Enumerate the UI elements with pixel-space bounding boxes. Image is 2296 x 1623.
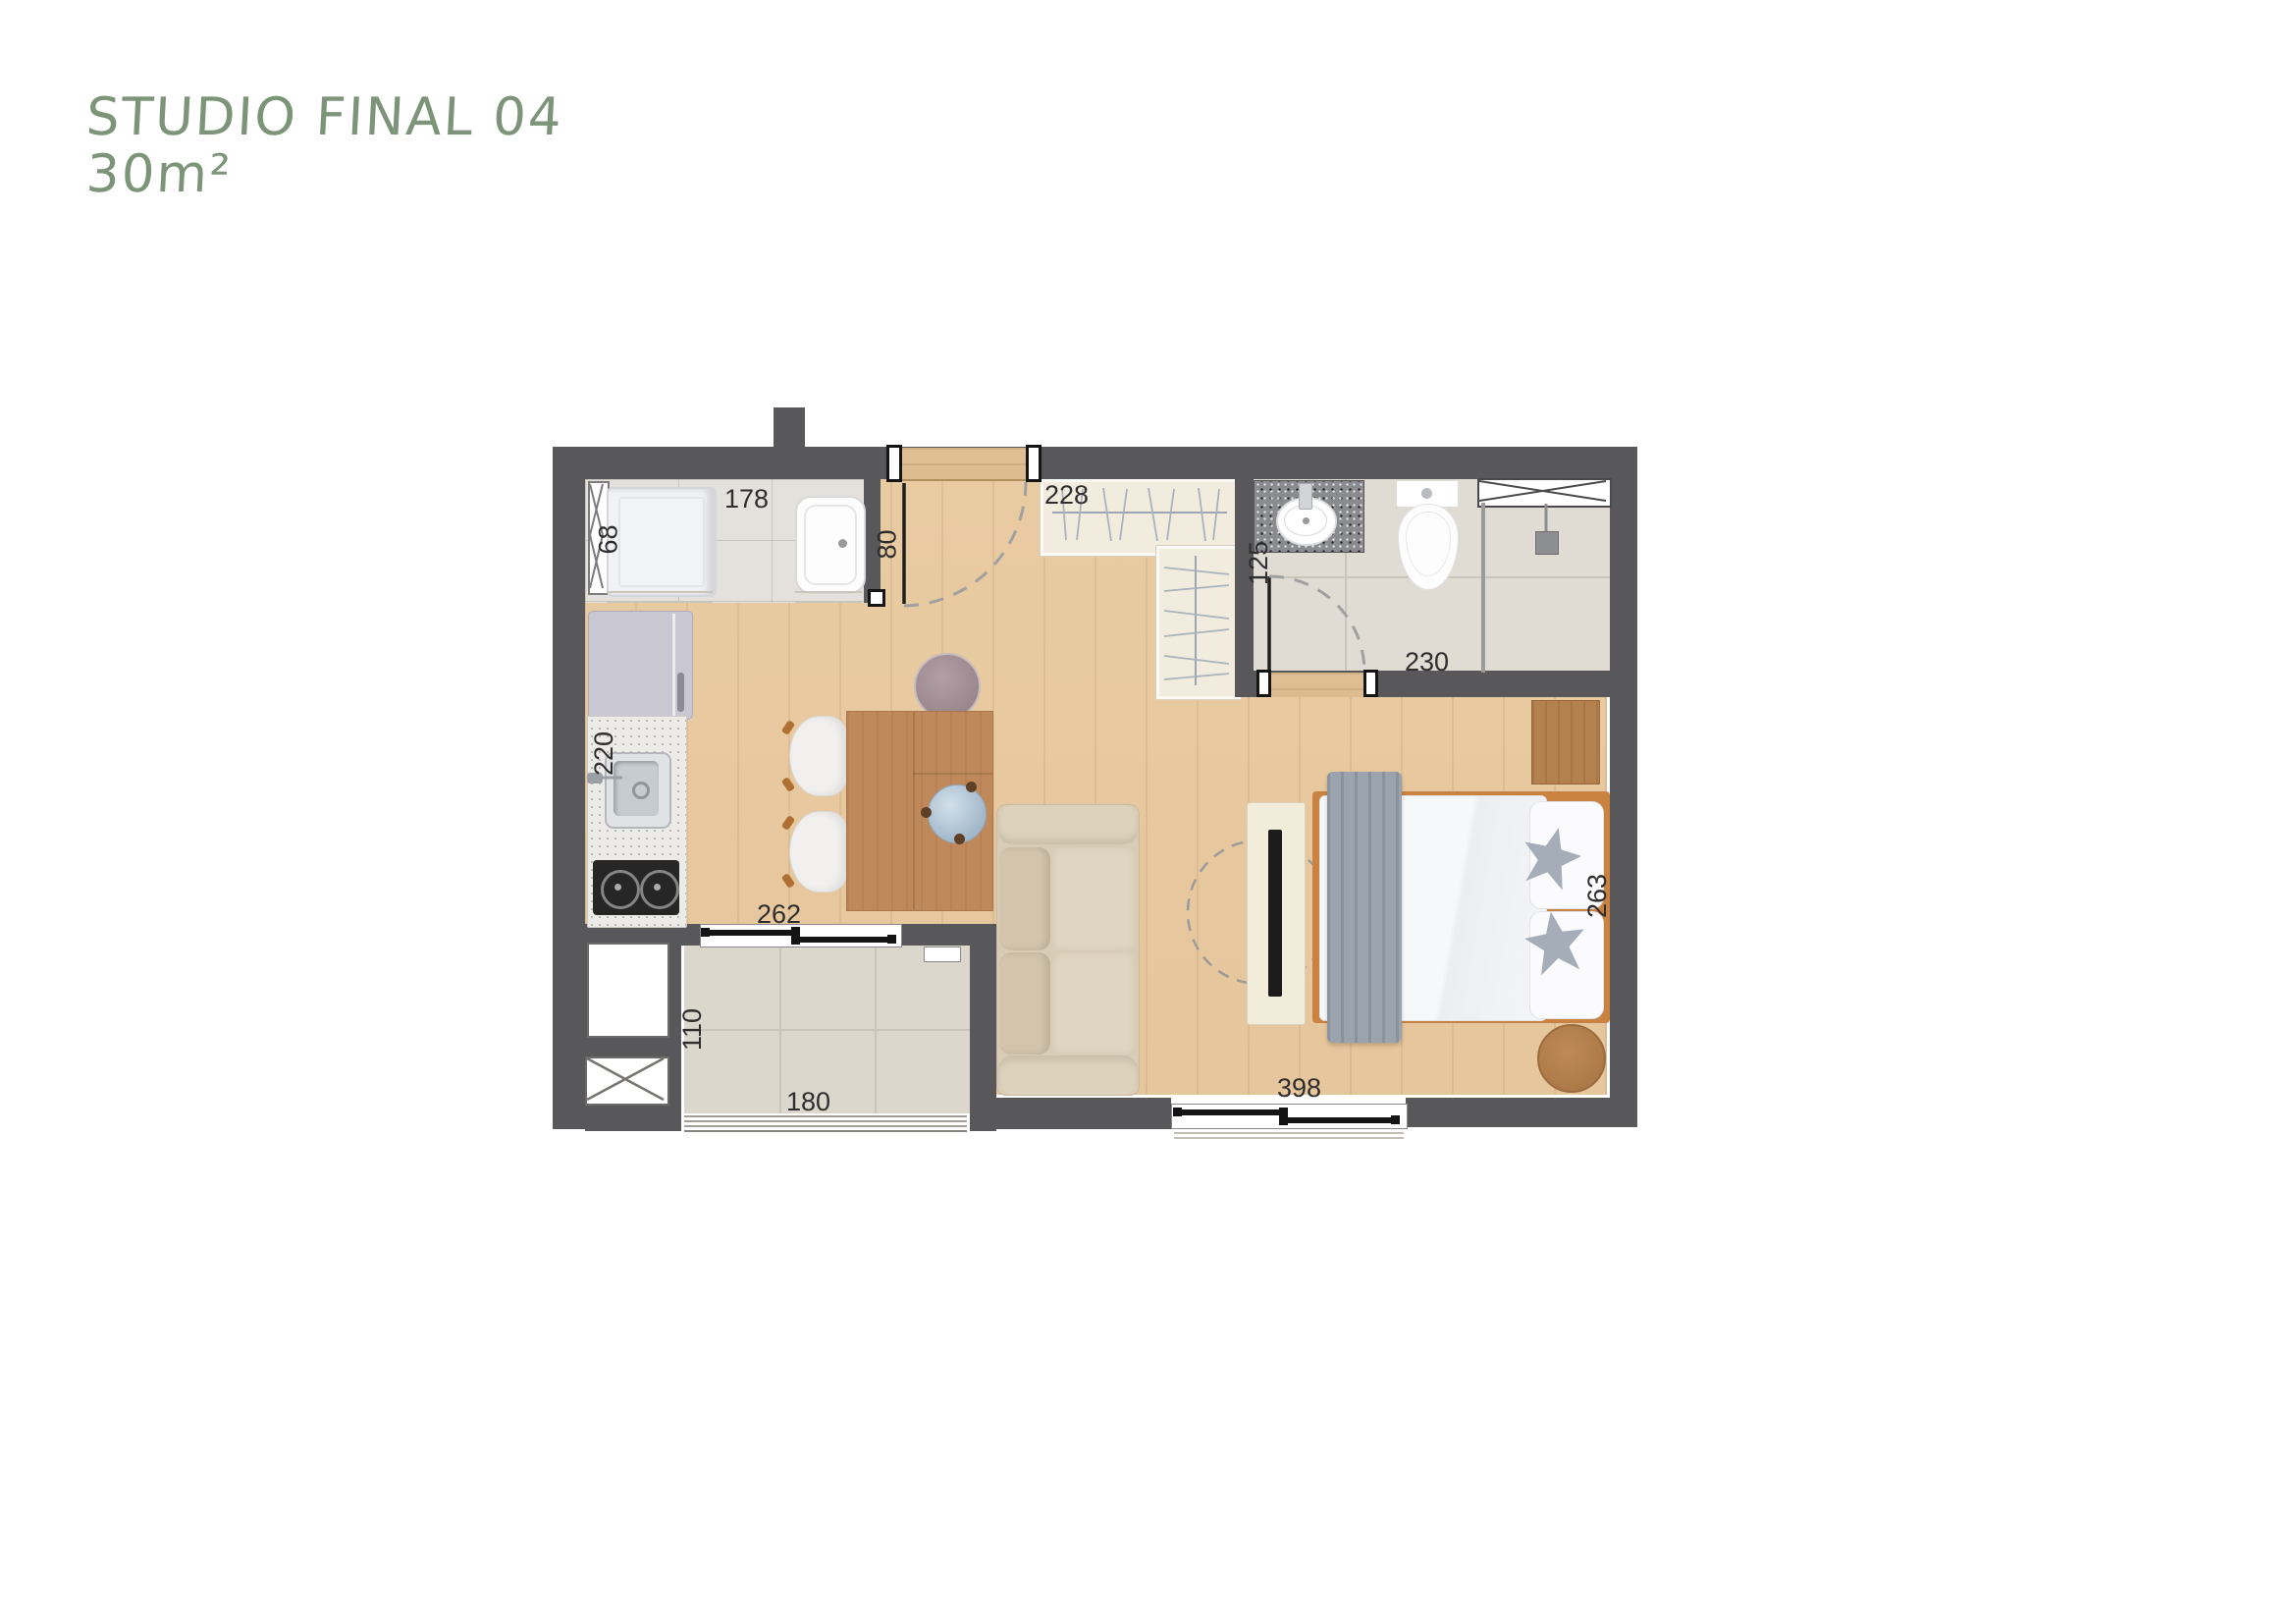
- dim-label-kitchen-run: 220: [589, 731, 619, 776]
- dim-label-entry-clearance: 80: [873, 529, 903, 559]
- balcony-railing-lines: [684, 1116, 967, 1131]
- dim-label-living-window: 262: [757, 899, 801, 930]
- dim-label-balcony-width: 180: [786, 1087, 830, 1117]
- dim-label-bedroom-depth: 263: [1582, 874, 1613, 918]
- bathroom-window-x-icon: [1479, 481, 1606, 501]
- dim-label-closet-run: 228: [1044, 480, 1089, 511]
- dim-label-bedroom-window: 398: [1277, 1073, 1321, 1104]
- closet-hangers: [1062, 488, 1229, 679]
- closet-rails: [1052, 513, 1227, 685]
- window-262-sashes: [706, 933, 895, 940]
- window-398-sill-lines: [1174, 1133, 1404, 1138]
- dim-label-bathroom-width: 230: [1405, 647, 1449, 677]
- plan-linework-over: [0, 0, 2296, 1623]
- dim-label-washer-width: 68: [594, 524, 624, 554]
- dim-label-bathroom-depth: 125: [1244, 541, 1274, 585]
- dim-label-balcony-depth: 110: [677, 1008, 708, 1051]
- dim-label-laundry-width: 178: [724, 484, 769, 514]
- duct-x-icon: [587, 1058, 664, 1100]
- page: { "header": { "title": "STUDIO FINAL 04"…: [0, 0, 2296, 1623]
